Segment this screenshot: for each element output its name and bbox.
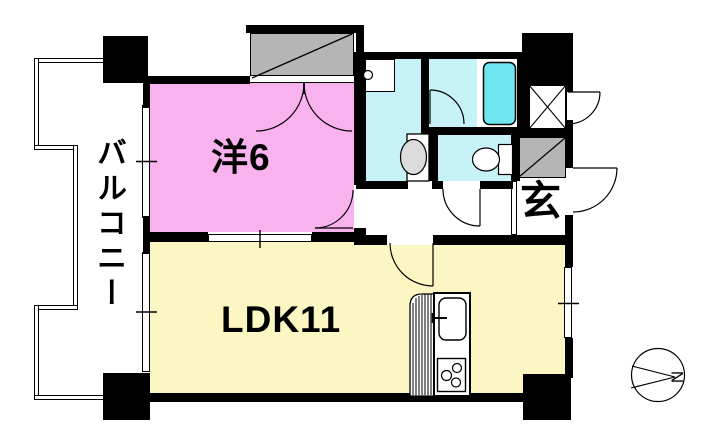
wall bbox=[566, 120, 573, 168]
wall bbox=[511, 135, 520, 181]
room-toilet bbox=[438, 135, 511, 181]
compass-circle bbox=[632, 349, 685, 402]
wall bbox=[480, 181, 513, 189]
compass-north-label: N bbox=[668, 371, 687, 383]
door-toilet bbox=[443, 189, 480, 226]
balcony-rail bbox=[36, 58, 104, 63]
wall bbox=[146, 232, 208, 242]
room-label-entrance: 玄 bbox=[520, 181, 561, 222]
sliding-door-western-ldk bbox=[208, 234, 312, 242]
balcony-rail bbox=[34, 305, 78, 310]
meter-box bbox=[528, 84, 567, 130]
door-entrance bbox=[573, 168, 617, 212]
window-western-balcony bbox=[142, 105, 150, 218]
floor-plan: N 洋6 LDK11 玄 バルコニー bbox=[0, 0, 713, 448]
window-ldk-balcony bbox=[142, 252, 150, 372]
wall bbox=[432, 181, 443, 189]
room-ldk bbox=[150, 242, 565, 393]
pillar bbox=[522, 33, 573, 85]
compass: N bbox=[631, 349, 687, 402]
closet bbox=[250, 33, 354, 76]
wall bbox=[143, 80, 150, 108]
bathtub bbox=[484, 63, 516, 125]
balcony-rail bbox=[73, 145, 78, 308]
wall bbox=[354, 52, 366, 185]
entrance-step bbox=[511, 181, 517, 235]
wall bbox=[517, 85, 528, 130]
compass-needle bbox=[632, 366, 675, 377]
wall bbox=[246, 25, 358, 33]
balcony-rail bbox=[34, 305, 39, 400]
room-label-ldk: LDK11 bbox=[221, 301, 341, 338]
wall bbox=[421, 127, 523, 135]
shoe-cabinet bbox=[518, 137, 566, 178]
balcony-rail bbox=[34, 145, 78, 150]
pillar bbox=[103, 373, 150, 420]
wall bbox=[428, 135, 438, 181]
closet-door-track bbox=[250, 75, 354, 83]
wall bbox=[518, 130, 573, 137]
wash-basin-counter bbox=[364, 59, 395, 92]
wall bbox=[517, 52, 523, 85]
balcony-rail bbox=[34, 58, 39, 148]
wall bbox=[146, 393, 526, 402]
room-label-western: 洋6 bbox=[211, 139, 271, 176]
wall bbox=[565, 338, 573, 378]
wall bbox=[312, 232, 355, 242]
wall bbox=[433, 235, 573, 245]
compass-needle bbox=[631, 377, 675, 388]
room-bathroom bbox=[429, 58, 477, 128]
door-opening-ldk bbox=[387, 235, 433, 245]
wall bbox=[355, 235, 387, 245]
pillar bbox=[103, 36, 148, 83]
wall bbox=[356, 52, 523, 59]
room-label-balcony: バルコニー bbox=[93, 137, 123, 337]
pillar bbox=[523, 374, 571, 420]
wall bbox=[421, 58, 429, 128]
wall bbox=[356, 181, 408, 189]
window-ldk-right bbox=[564, 267, 572, 338]
balcony-rail bbox=[34, 395, 104, 400]
wall bbox=[146, 76, 250, 84]
